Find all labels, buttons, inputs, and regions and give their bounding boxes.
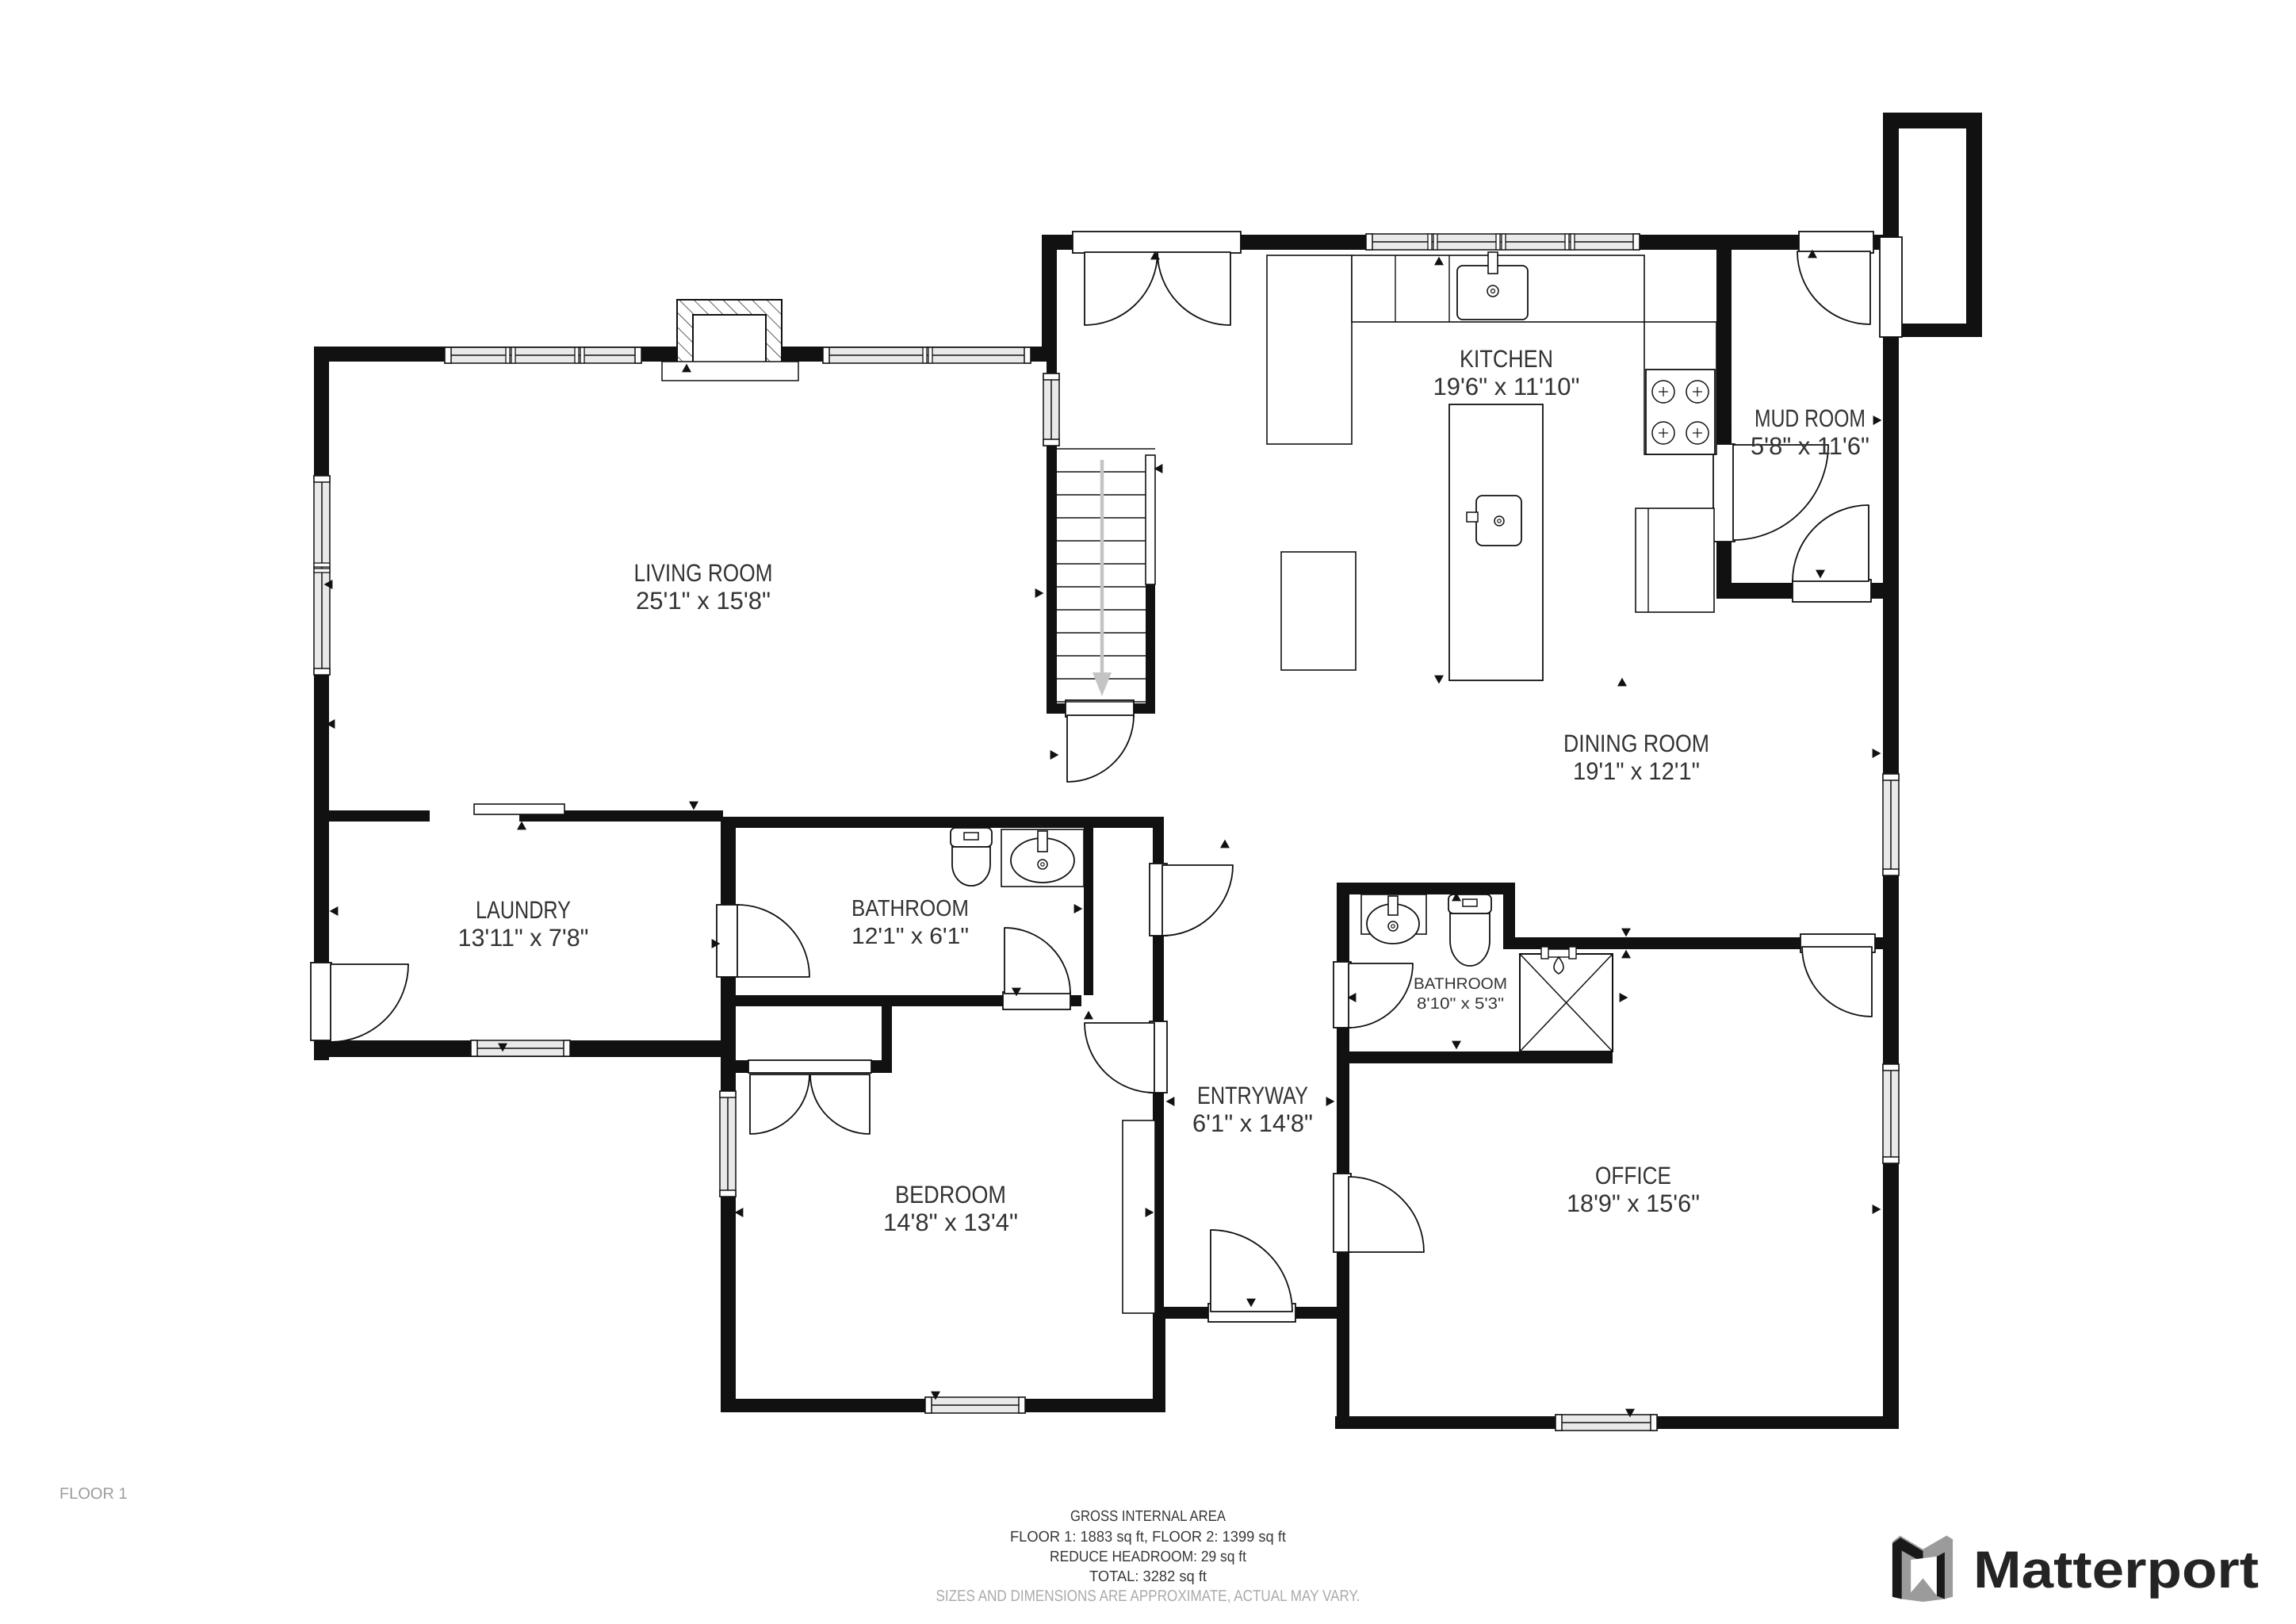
svg-text:MUD ROOM: MUD ROOM	[1755, 404, 1865, 432]
svg-text:OFFICE: OFFICE	[1595, 1162, 1671, 1189]
svg-text:LAUNDRY: LAUNDRY	[476, 896, 571, 924]
svg-text:25'1" x 15'8": 25'1" x 15'8"	[636, 587, 771, 615]
svg-text:DINING ROOM: DINING ROOM	[1563, 730, 1709, 757]
svg-text:BATHROOM: BATHROOM	[1414, 975, 1507, 993]
svg-text:TOTAL: 3282 sq ft: TOTAL: 3282 sq ft	[1089, 1568, 1207, 1585]
svg-text:SIZES AND DIMENSIONS ARE APPRO: SIZES AND DIMENSIONS ARE APPROXIMATE, AC…	[936, 1588, 1360, 1605]
svg-text:19'6" x 11'10": 19'6" x 11'10"	[1433, 373, 1580, 400]
svg-text:FLOOR 1: FLOOR 1	[59, 1485, 128, 1503]
svg-text:13'11" x 7'8": 13'11" x 7'8"	[458, 924, 589, 952]
svg-text:12'1" x 6'1": 12'1" x 6'1"	[851, 924, 969, 949]
svg-text:14'8" x 13'4": 14'8" x 13'4"	[883, 1208, 1018, 1236]
svg-text:Matterport: Matterport	[1973, 1540, 2259, 1599]
svg-text:ENTRYWAY: ENTRYWAY	[1197, 1082, 1308, 1109]
svg-text:REDUCE HEADROOM: 29 sq ft: REDUCE HEADROOM: 29 sq ft	[1050, 1549, 1247, 1565]
svg-text:BEDROOM: BEDROOM	[895, 1181, 1006, 1208]
svg-text:GROSS INTERNAL AREA: GROSS INTERNAL AREA	[1070, 1508, 1226, 1525]
svg-text:LIVING ROOM: LIVING ROOM	[634, 559, 773, 587]
svg-text:6'1" x 14'8": 6'1" x 14'8"	[1192, 1109, 1313, 1137]
svg-text:BATHROOM: BATHROOM	[851, 896, 969, 921]
svg-text:FLOOR 1: 1883 sq ft, FLOOR 2:: FLOOR 1: 1883 sq ft, FLOOR 2: 1399 sq ft	[1010, 1529, 1287, 1545]
svg-text:KITCHEN: KITCHEN	[1460, 345, 1553, 373]
svg-text:18'9" x 15'6": 18'9" x 15'6"	[1567, 1189, 1700, 1217]
svg-text:8'10" x 5'3": 8'10" x 5'3"	[1417, 995, 1504, 1013]
svg-text:19'1" x 12'1": 19'1" x 12'1"	[1573, 757, 1700, 785]
svg-text:5'8" x 11'6": 5'8" x 11'6"	[1751, 432, 1869, 460]
